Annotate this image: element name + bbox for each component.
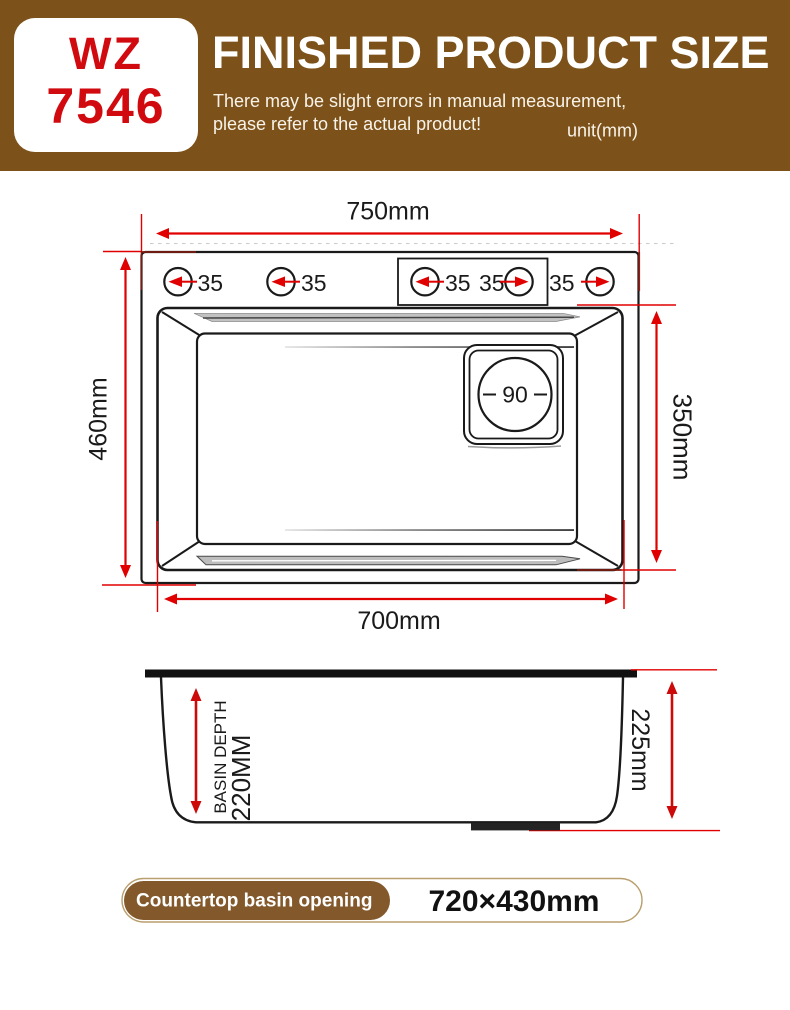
svg-text:7546: 7546	[46, 78, 165, 134]
svg-text:220MM: 220MM	[226, 735, 256, 822]
svg-text:There may be slight errors in: There may be slight errors in manual mea…	[213, 91, 626, 111]
svg-text:unit(mm): unit(mm)	[567, 121, 638, 141]
svg-text:35: 35	[301, 270, 327, 296]
svg-text:720×430mm: 720×430mm	[429, 885, 600, 918]
svg-text:please refer to the actual pro: please refer to the actual product!	[213, 114, 481, 134]
svg-text:750mm: 750mm	[346, 198, 429, 226]
svg-text:Countertop basin opening: Countertop basin opening	[136, 891, 372, 912]
svg-text:WZ: WZ	[69, 28, 143, 79]
svg-text:35: 35	[445, 270, 471, 296]
svg-text:225mm: 225mm	[626, 708, 654, 791]
svg-text:460mm: 460mm	[85, 377, 113, 460]
svg-text:700mm: 700mm	[357, 607, 440, 635]
svg-text:35: 35	[198, 270, 224, 296]
svg-text:350mm: 350mm	[668, 394, 698, 481]
svg-text:FINISHED PRODUCT SIZE: FINISHED PRODUCT SIZE	[212, 27, 770, 78]
svg-text:35: 35	[549, 270, 575, 296]
svg-text:35: 35	[479, 270, 505, 296]
svg-text:90: 90	[502, 382, 528, 408]
